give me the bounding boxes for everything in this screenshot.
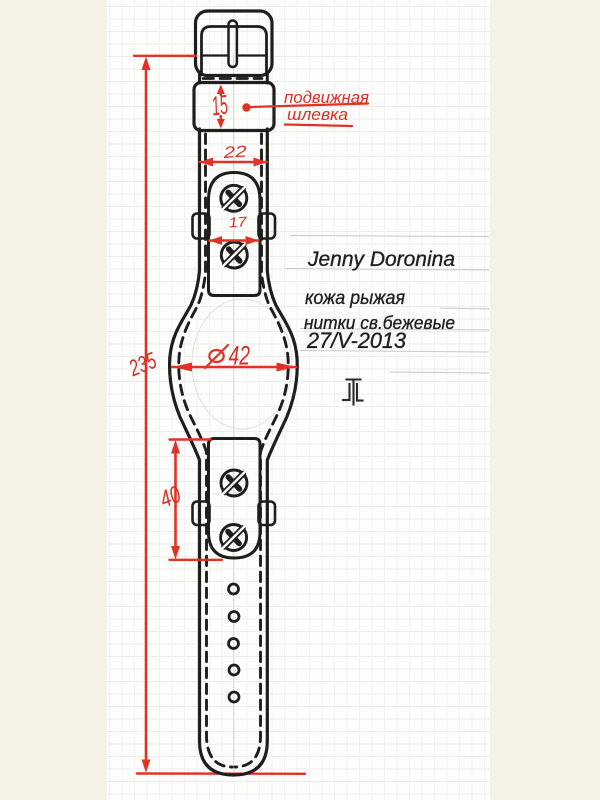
- svg-text:27/V-2013: 27/V-2013: [306, 328, 407, 353]
- svg-text:шлевка: шлевка: [287, 105, 348, 124]
- svg-text:Jenny Doronina: Jenny Doronina: [307, 247, 455, 271]
- svg-text:кожа рыжая: кожа рыжая: [305, 288, 405, 309]
- svg-text:17: 17: [228, 213, 248, 230]
- svg-text:22: 22: [222, 143, 248, 162]
- svg-text:42: 42: [229, 341, 251, 371]
